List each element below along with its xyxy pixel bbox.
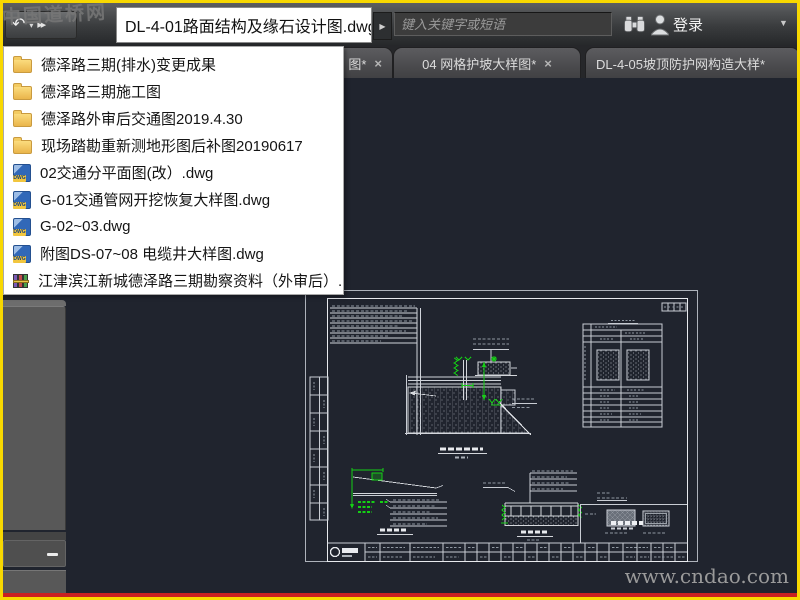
folder-icon xyxy=(13,113,32,127)
folder-icon xyxy=(13,59,32,73)
dwg-file-icon: DWG xyxy=(13,164,31,182)
search-input[interactable] xyxy=(395,13,623,35)
item-label: 德泽路三期(排水)变更成果 xyxy=(41,54,216,75)
tab-dl-4-05[interactable]: DL-4-05坡顶防护网构造大样* xyxy=(585,47,797,78)
dropdown-item-folder[interactable]: 德泽路三期施工图 xyxy=(4,78,343,105)
rar-archive-icon xyxy=(13,273,29,289)
title-bar: ↶ ▾ ▶▶ DL-4-01路面结构及缘石设计图.dwg ▶ 登录 ▼ xyxy=(3,3,797,46)
item-label: 江津滨江新城德泽路三期勘察资料（外审后）.ra xyxy=(38,270,343,291)
main-section-view xyxy=(405,339,537,458)
current-file-combo[interactable]: DL-4-01路面结构及缘石设计图.dwg xyxy=(116,7,372,43)
dropdown-item-dwg[interactable]: DWG G-01交通管网开挖恢复大样图.dwg xyxy=(4,186,343,213)
tab-label: DL-4-05坡顶防护网构造大样* xyxy=(596,54,765,73)
layer-annotation-stack xyxy=(330,308,421,435)
dropdown-item-folder[interactable]: 德泽路外审后交通图2019.4.30 xyxy=(4,105,343,132)
item-label: 德泽路外审后交通图2019.4.30 xyxy=(41,108,243,129)
pavement-detail xyxy=(483,471,578,540)
item-label: G-01交通管网开挖恢复大样图.dwg xyxy=(40,189,270,210)
palette-collapse-button[interactable] xyxy=(47,553,58,556)
tab-close-icon[interactable]: × xyxy=(544,57,552,70)
palette-body xyxy=(3,306,66,530)
dropdown-item-dwg[interactable]: DWG G-02~03.dwg xyxy=(4,213,343,240)
palette-divider xyxy=(3,532,66,540)
dropdown-item-dwg[interactable]: DWG 附图DS-07~08 电缆井大样图.dwg xyxy=(4,240,343,267)
dropdown-item-rar[interactable]: 江津滨江新城德泽路三期勘察资料（外审后）.ra xyxy=(4,267,343,294)
dropdown-item-folder[interactable]: 德泽路三期(排水)变更成果 xyxy=(4,51,343,78)
tool-palette xyxy=(3,300,66,597)
search-box xyxy=(394,12,612,36)
application-window: ↶ ▾ ▶▶ DL-4-01路面结构及缘石设计图.dwg ▶ 登录 ▼ xyxy=(3,3,797,597)
dwg-file-icon: DWG xyxy=(13,245,31,263)
user-icon[interactable] xyxy=(650,13,670,36)
slope-detail xyxy=(353,477,447,535)
item-label: 德泽路三期施工图 xyxy=(41,81,161,102)
login-button[interactable]: 登录 xyxy=(673,14,703,35)
spec-table xyxy=(583,324,662,428)
tab-label: 04 网格护坡大样图* xyxy=(422,54,536,73)
dropdown-item-dwg[interactable]: DWG 02交通分平面图(改）.dwg xyxy=(4,159,343,186)
titlebar-menu-caret-icon[interactable]: ▼ xyxy=(779,18,788,28)
slope-detail-green xyxy=(350,468,388,512)
folder-icon xyxy=(13,86,32,100)
dropdown-item-folder[interactable]: 现场踏勘重新测地形图后补图20190617 xyxy=(4,132,343,159)
watermark-site-url: www.cndao.com xyxy=(625,564,789,588)
item-label: 现场踏勘重新测地形图后补图20190617 xyxy=(41,135,303,156)
title-block-logo xyxy=(331,548,359,558)
dwg-file-icon: DWG xyxy=(13,191,31,209)
folder-icon xyxy=(13,140,32,154)
layer-annotation-text xyxy=(332,306,415,341)
palette-collapsed-section xyxy=(3,540,66,567)
material-legend xyxy=(580,493,687,543)
title-block xyxy=(328,543,688,561)
item-label: 02交通分平面图(改）.dwg xyxy=(40,162,213,183)
binoculars-icon[interactable] xyxy=(623,13,646,35)
dwg-file-icon: DWG xyxy=(13,218,31,236)
bottom-accent-strip xyxy=(3,593,797,597)
file-list-expand-button[interactable]: ▶ xyxy=(373,12,392,40)
item-label: 附图DS-07~08 电缆井大样图.dwg xyxy=(40,243,264,264)
tab-close-icon[interactable]: × xyxy=(374,57,382,70)
revision-table xyxy=(310,377,328,520)
tab-04-wangge-hupo[interactable]: 04 网格护坡大样图* × xyxy=(393,47,581,78)
file-dropdown-panel: 德泽路三期(排水)变更成果 德泽路三期施工图 德泽路外审后交通图2019.4.3… xyxy=(3,46,344,295)
cad-drawing xyxy=(305,290,700,565)
tab-label: 图* xyxy=(348,54,366,73)
item-label: G-02~03.dwg xyxy=(40,218,130,235)
